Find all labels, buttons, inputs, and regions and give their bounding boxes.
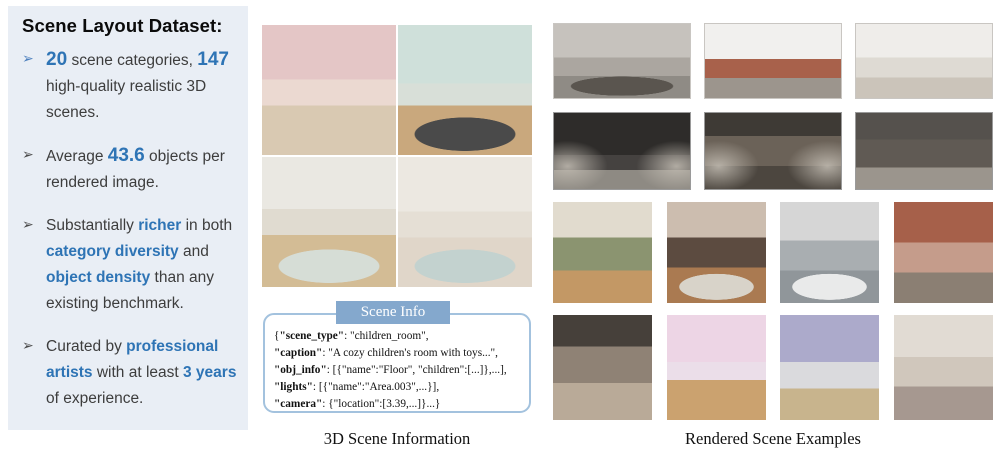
text-segment: with at least <box>93 364 183 381</box>
bullet-item-3: ➢Substantially richer in both category d… <box>22 213 238 317</box>
scene-info-line-1: {"scene_type": "children_room", <box>274 328 521 345</box>
scene-info-line-2: "caption": "A cozy children's room with … <box>274 345 521 362</box>
thumb-meeting-room <box>667 202 766 303</box>
thumb-dining-room <box>398 157 532 287</box>
text-segment: "caption" <box>274 347 322 359</box>
scene-info-box: {"scene_type": "children_room","caption"… <box>263 313 531 413</box>
rendered-examples-row-1 <box>553 23 993 99</box>
bullet-arrow-icon: ➢ <box>22 213 46 317</box>
text-segment: : [{"name":"Area.003",...}], <box>313 381 439 393</box>
text-segment: richer <box>138 217 181 234</box>
bullet-arrow-icon: ➢ <box>22 143 46 196</box>
rendered-examples-row-2 <box>553 112 993 190</box>
bullet-item-2: ➢Average 43.6 objects per rendered image… <box>22 143 238 196</box>
thumb-cluttered-garage <box>553 315 652 420</box>
text-segment: "scene_type" <box>279 330 344 342</box>
thumb-gray-bedroom-tv <box>553 23 691 99</box>
text-segment: 20 <box>46 49 67 70</box>
scene-info-tab: Scene Info <box>336 301 450 324</box>
thumb-brick-construction-site <box>704 23 842 99</box>
thumb-lavender-bedroom <box>780 315 879 420</box>
bullet-arrow-icon: ➢ <box>22 47 46 126</box>
text-segment: 3 years <box>183 364 236 381</box>
thumb-dark-vintage-living-room <box>704 112 842 190</box>
thumb-plant-room <box>553 202 652 303</box>
bullet-text: Curated by professional artists with at … <box>46 334 238 412</box>
text-segment: 43.6 <box>108 145 145 166</box>
text-segment: "camera" <box>274 398 322 410</box>
bullet-arrow-icon: ➢ <box>22 334 46 412</box>
caption-3d-scene-information: 3D Scene Information <box>262 429 532 449</box>
thumb-pink-kids-room <box>667 315 766 420</box>
text-segment: and <box>179 243 209 260</box>
figure-canvas: Scene Layout Dataset: ➢20 scene categori… <box>0 0 1000 458</box>
thumb-music-room <box>894 315 993 420</box>
text-segment: 147 <box>197 49 229 70</box>
scene-info-line-4: "lights": [{"name":"Area.003",...}], <box>274 379 521 396</box>
text-segment: : [{"name":"Floor", "children":[...]},..… <box>327 364 507 376</box>
text-segment: "obj_info" <box>274 364 327 376</box>
text-segment: category diversity <box>46 243 179 260</box>
thumb-white-bedroom-chandelier <box>855 23 993 99</box>
thumb-dark-stage-living-room <box>553 112 691 190</box>
thumb-dark-warehouse-stage <box>855 112 993 190</box>
panel-title: Scene Layout Dataset: <box>22 15 238 37</box>
thumb-childrens-room-pink-bunkbed <box>262 25 396 155</box>
text-segment: : "A cozy children's room with toys...", <box>322 347 498 359</box>
text-segment: object density <box>46 269 150 286</box>
bullet-text: Substantially richer in both category di… <box>46 213 238 317</box>
text-segment: Curated by <box>46 338 126 355</box>
bullet-text: 20 scene categories, 147 high-quality re… <box>46 47 238 126</box>
text-segment: : "children_room", <box>344 330 429 342</box>
caption-rendered-scene-examples: Rendered Scene Examples <box>553 429 993 449</box>
text-segment: scene categories, <box>67 52 197 69</box>
text-segment: Average <box>46 148 108 165</box>
text-segment: Substantially <box>46 217 138 234</box>
thumb-clinic-room <box>262 157 396 287</box>
thumb-bathroom <box>780 202 879 303</box>
bullet-list: ➢20 scene categories, 147 high-quality r… <box>22 47 238 412</box>
text-segment: in both <box>181 217 232 234</box>
rendered-examples-row-3 <box>553 202 993 303</box>
scene-thumbnail-grid <box>262 25 532 287</box>
text-segment: of experience. <box>46 390 143 407</box>
thumb-childrens-room-blue-bunkbed <box>398 25 532 155</box>
scene-info-line-3: "obj_info": [{"name":"Floor", "children"… <box>274 362 521 379</box>
scene-info-line-5: "camera": {"location":[3.39,...]}...} <box>274 396 521 413</box>
text-segment: : {"location":[3.39,...]}...} <box>322 398 440 410</box>
thumb-brick-workshop <box>894 202 993 303</box>
scene-info-json: {"scene_type": "children_room","caption"… <box>274 328 521 413</box>
text-segment: "lights" <box>274 381 313 393</box>
bullet-text: Average 43.6 objects per rendered image. <box>46 143 238 196</box>
rendered-examples-row-4 <box>553 315 993 420</box>
bullet-item-4: ➢Curated by professional artists with at… <box>22 334 238 412</box>
bullet-item-1: ➢20 scene categories, 147 high-quality r… <box>22 47 238 126</box>
text-segment: high-quality realistic 3D scenes. <box>46 78 206 121</box>
dataset-summary-panel: Scene Layout Dataset: ➢20 scene categori… <box>8 6 248 430</box>
